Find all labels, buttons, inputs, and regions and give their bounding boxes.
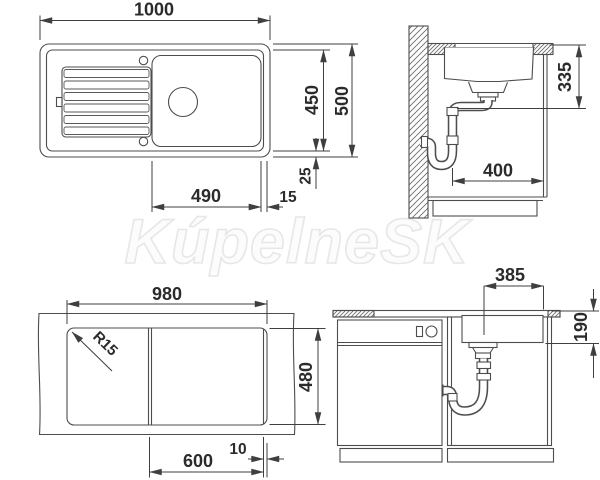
plinth-left: [340, 449, 442, 463]
dim-basin-depth: 190: [571, 312, 591, 342]
basin-front: [462, 316, 543, 343]
dim-basin-edge-gap: 15: [279, 189, 297, 206]
dim-drain-depth: 335: [555, 62, 575, 92]
dim-overall-width: 1000: [134, 0, 174, 20]
dim-basin-cutout-width: 600: [183, 451, 213, 471]
dim-edge-gap: 10: [229, 441, 246, 458]
dim-overall-depth: 500: [332, 86, 352, 116]
countertop-hatch-left: [333, 311, 374, 318]
dim-drain-offset: 400: [483, 161, 513, 181]
basin-section: [445, 48, 534, 82]
dim-cutout-width: 980: [152, 284, 182, 304]
plinth: [433, 201, 537, 217]
dim-cutout-depth: 480: [296, 362, 316, 392]
plinth-right: [448, 449, 554, 463]
dim-inner-depth: 450: [302, 85, 322, 115]
dishwasher-cabinet: [338, 320, 443, 446]
sink-technical-drawing: KúpelneSK 1000 450 500 25: [0, 0, 600, 480]
dim-basin-width: 490: [191, 186, 221, 206]
dim-front-basin-width: 385: [495, 265, 525, 285]
wall-hatch: [409, 26, 428, 218]
dim-rim: 25: [298, 167, 315, 185]
